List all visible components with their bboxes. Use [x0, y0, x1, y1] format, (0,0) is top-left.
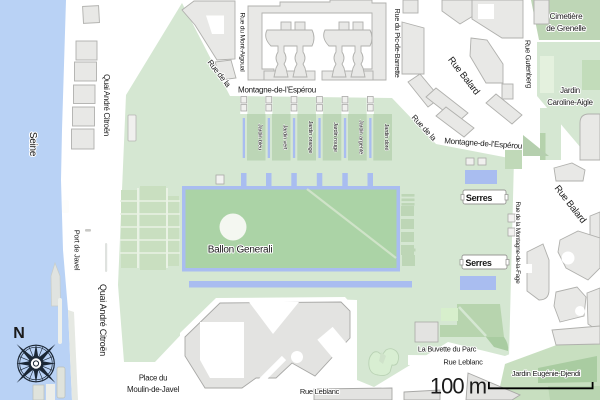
svg-text:Seine: Seine — [27, 132, 38, 157]
svg-text:Rue de la Montagne-de-la-Fage: Rue de la Montagne-de-la-Fage — [514, 201, 521, 284]
svg-text:Quai André Citroën: Quai André Citroën — [102, 74, 111, 136]
svg-text:Place du: Place du — [139, 374, 167, 383]
svg-text:Rue Leblanc: Rue Leblanc — [300, 387, 340, 396]
svg-text:Jardin doré: Jardin doré — [383, 124, 389, 151]
svg-text:Jardin: Jardin — [560, 86, 580, 95]
svg-text:Serres: Serres — [466, 193, 493, 203]
svg-text:Jardin bleu: Jardin bleu — [257, 124, 263, 150]
svg-text:Jardin argenté: Jardin argenté — [358, 120, 364, 154]
svg-text:Port de Javel: Port de Javel — [73, 230, 82, 271]
svg-text:Jardin rouge: Jardin rouge — [332, 122, 338, 152]
svg-text:La Buvette du Parc: La Buvette du Parc — [418, 345, 477, 354]
svg-text:Serres: Serres — [465, 258, 492, 268]
svg-text:Rue du Pic-de-Barrette: Rue du Pic-de-Barrette — [393, 8, 402, 77]
svg-text:N: N — [13, 325, 25, 342]
svg-text:Rue du Mont-Aigoual: Rue du Mont-Aigoual — [239, 12, 246, 72]
svg-text:Cimetière: Cimetière — [550, 12, 583, 21]
svg-text:Rue Leblanc: Rue Leblanc — [443, 358, 483, 367]
svg-text:Moulin-de-Javel: Moulin-de-Javel — [127, 385, 179, 394]
svg-text:100 m: 100 m — [430, 374, 486, 399]
svg-text:Rue Gutenberg: Rue Gutenberg — [523, 40, 534, 88]
svg-text:Montagne-de-l’Espérou: Montagne-de-l’Espérou — [238, 86, 316, 95]
svg-text:Quai André Citroën: Quai André Citroën — [98, 284, 108, 356]
svg-text:Jardin orange: Jardin orange — [307, 121, 313, 154]
svg-text:Ballon Generali: Ballon Generali — [208, 245, 273, 256]
svg-text:Caroline-Aigle: Caroline-Aigle — [547, 98, 592, 107]
svg-text:Jardin vert: Jardin vert — [282, 125, 288, 150]
svg-text:de Grenelle: de Grenelle — [546, 24, 586, 33]
svg-text:Jardin Eugénie-Djendi: Jardin Eugénie-Djendi — [512, 369, 581, 378]
